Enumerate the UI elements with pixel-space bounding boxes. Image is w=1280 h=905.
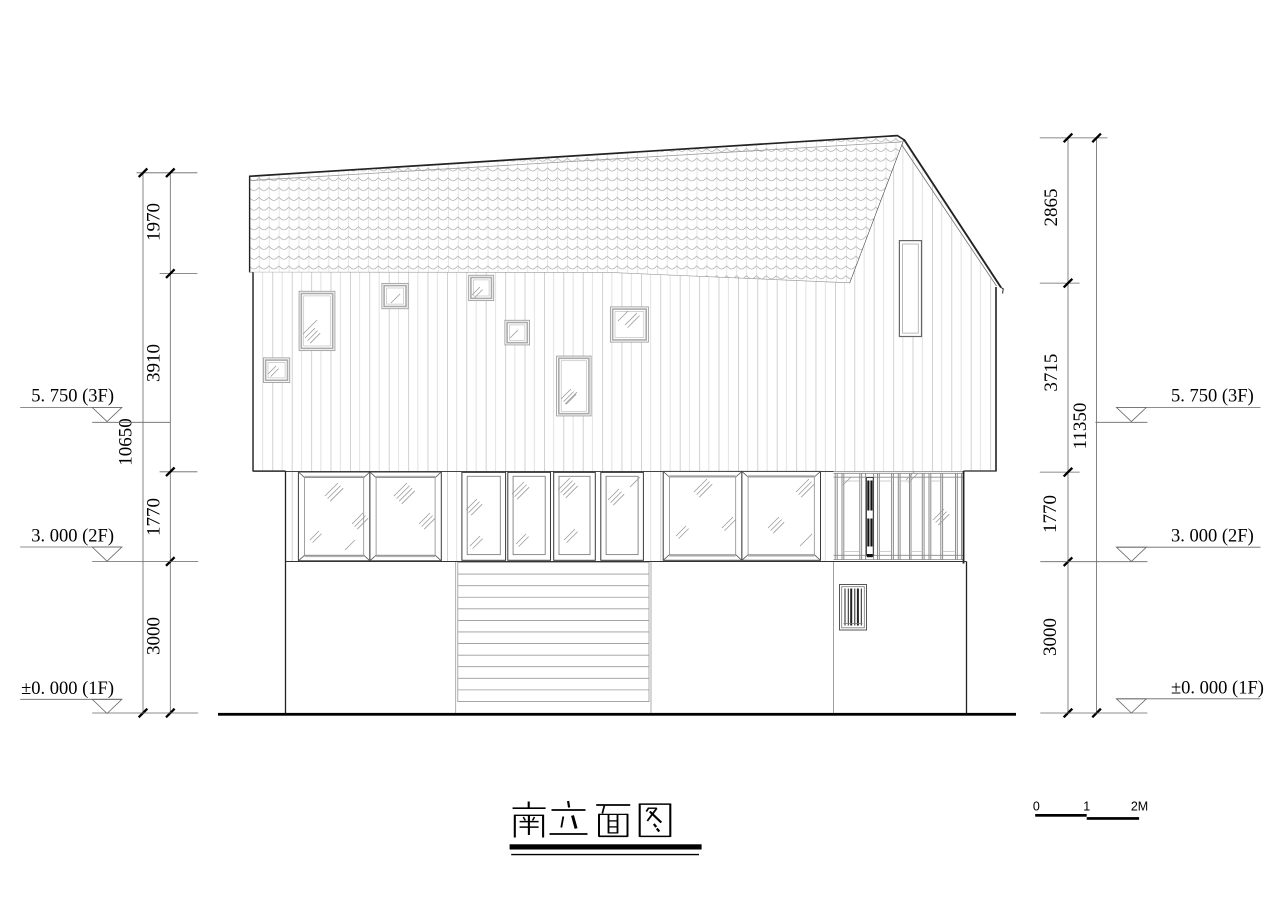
svg-text:0: 0 <box>1033 800 1040 814</box>
svg-text:3910: 3910 <box>144 344 165 382</box>
svg-text:5. 750 (3F): 5. 750 (3F) <box>31 387 114 407</box>
svg-text:2865: 2865 <box>1041 189 1062 227</box>
svg-text:1: 1 <box>1083 800 1090 814</box>
svg-text:±0. 000 (1F): ±0. 000 (1F) <box>1171 679 1264 699</box>
svg-text:±0. 000 (1F): ±0. 000 (1F) <box>21 679 114 699</box>
svg-text:10650: 10650 <box>116 418 137 466</box>
svg-text:3715: 3715 <box>1041 354 1062 392</box>
svg-text:1770: 1770 <box>1040 495 1061 533</box>
svg-text:1770: 1770 <box>144 498 165 536</box>
svg-text:3000: 3000 <box>144 617 165 655</box>
svg-text:3000: 3000 <box>1040 618 1061 656</box>
svg-text:1970: 1970 <box>144 203 165 241</box>
svg-text:11350: 11350 <box>1070 403 1091 450</box>
svg-text:5. 750 (3F): 5. 750 (3F) <box>1171 387 1254 407</box>
svg-text:3. 000 (2F): 3. 000 (2F) <box>31 527 114 547</box>
svg-text:2M: 2M <box>1131 800 1148 814</box>
svg-text:3. 000 (2F): 3. 000 (2F) <box>1171 527 1254 547</box>
